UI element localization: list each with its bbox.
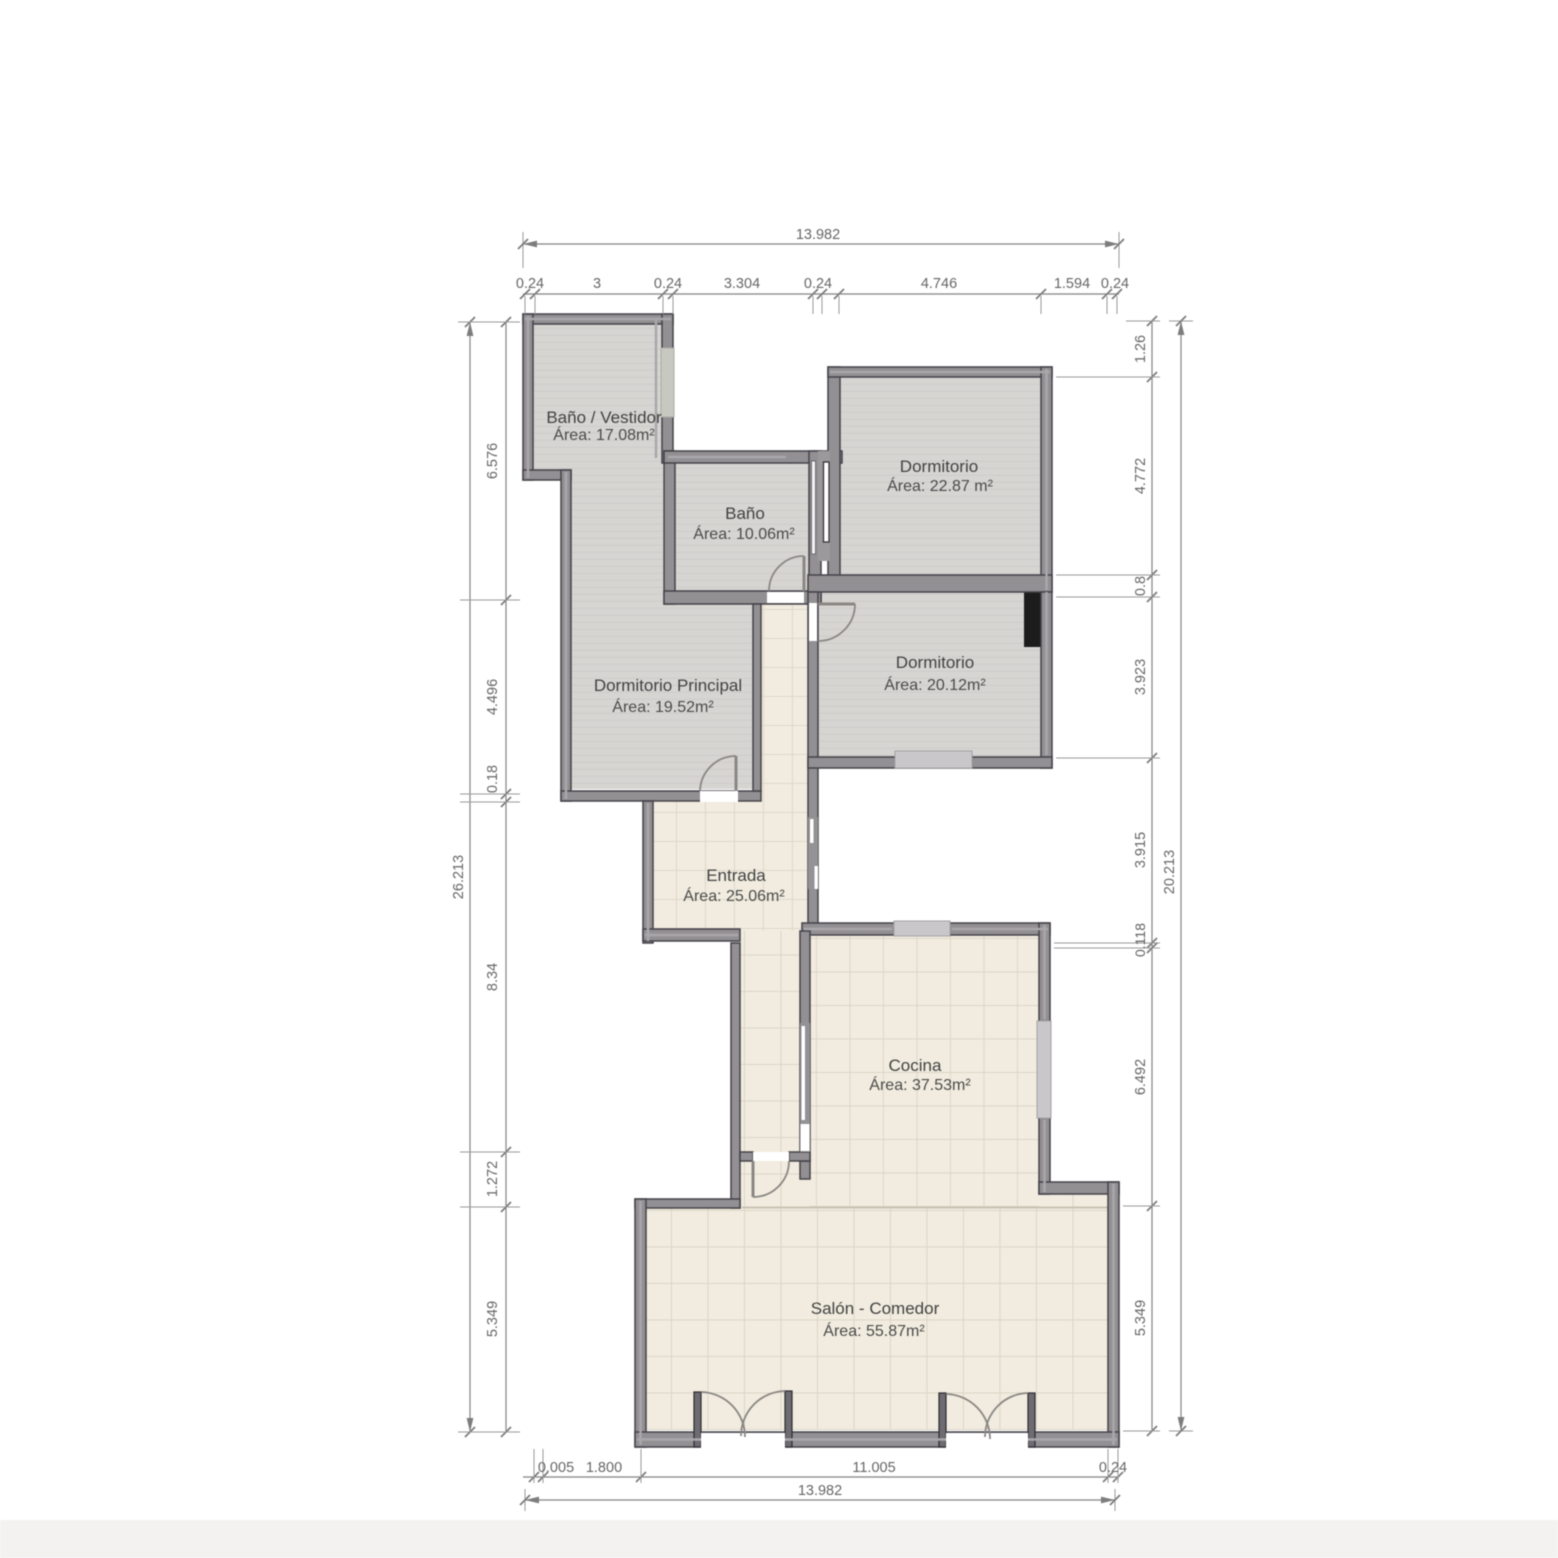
svg-text:8.34: 8.34 bbox=[485, 963, 501, 991]
svg-text:Área: 37.53m²: Área: 37.53m² bbox=[869, 1075, 971, 1094]
svg-text:0.8: 0.8 bbox=[1133, 576, 1149, 596]
svg-text:Entrada: Entrada bbox=[706, 866, 766, 885]
svg-text:Dormitorio Principal: Dormitorio Principal bbox=[594, 676, 742, 695]
svg-text:0.24: 0.24 bbox=[804, 276, 832, 292]
svg-text:Área: 25.06m²: Área: 25.06m² bbox=[683, 886, 785, 905]
svg-text:Dormitorio: Dormitorio bbox=[900, 457, 978, 476]
svg-text:4.772: 4.772 bbox=[1133, 458, 1149, 494]
svg-text:3.304: 3.304 bbox=[724, 276, 760, 292]
svg-text:Área: 17.08m²: Área: 17.08m² bbox=[553, 425, 655, 444]
svg-text:0.24: 0.24 bbox=[1099, 1460, 1127, 1476]
svg-text:13.982: 13.982 bbox=[796, 227, 840, 243]
svg-text:Área: 10.06m²: Área: 10.06m² bbox=[693, 524, 795, 543]
svg-text:Área: 19.52m²: Área: 19.52m² bbox=[612, 697, 714, 716]
svg-text:1.272: 1.272 bbox=[485, 1161, 501, 1197]
svg-text:20.213: 20.213 bbox=[1162, 850, 1178, 894]
svg-text:4.746: 4.746 bbox=[921, 276, 957, 292]
svg-text:5.349: 5.349 bbox=[485, 1301, 501, 1337]
svg-text:0.24: 0.24 bbox=[654, 276, 682, 292]
svg-text:0.005: 0.005 bbox=[538, 1460, 574, 1476]
svg-text:Baño / Vestidor: Baño / Vestidor bbox=[546, 408, 662, 427]
svg-text:3.923: 3.923 bbox=[1133, 659, 1149, 695]
svg-text:26.213: 26.213 bbox=[451, 855, 467, 899]
svg-text:6.492: 6.492 bbox=[1133, 1059, 1149, 1095]
svg-text:3.915: 3.915 bbox=[1133, 832, 1149, 868]
svg-text:1.26: 1.26 bbox=[1133, 335, 1149, 363]
svg-text:0.118: 0.118 bbox=[1132, 923, 1148, 957]
svg-text:Dormitorio: Dormitorio bbox=[896, 653, 974, 672]
svg-text:Área: 55.87m²: Área: 55.87m² bbox=[823, 1321, 925, 1340]
svg-text:4.496: 4.496 bbox=[485, 679, 501, 715]
svg-text:1.594: 1.594 bbox=[1054, 276, 1090, 292]
svg-text:1.800: 1.800 bbox=[586, 1460, 622, 1476]
svg-text:13.982: 13.982 bbox=[798, 1483, 842, 1499]
svg-text:Baño: Baño bbox=[725, 504, 765, 523]
svg-text:Cocina: Cocina bbox=[889, 1056, 942, 1075]
svg-text:0.18: 0.18 bbox=[485, 765, 501, 793]
svg-text:Salón - Comedor: Salón - Comedor bbox=[811, 1299, 940, 1318]
svg-text:3: 3 bbox=[593, 276, 601, 292]
svg-text:0.24: 0.24 bbox=[516, 276, 544, 292]
svg-text:Área: 22.87 m²: Área: 22.87 m² bbox=[887, 476, 994, 495]
svg-text:11.005: 11.005 bbox=[852, 1460, 895, 1476]
svg-text:6.576: 6.576 bbox=[485, 443, 501, 479]
svg-text:Área: 20.12m²: Área: 20.12m² bbox=[884, 675, 986, 694]
svg-text:0.24: 0.24 bbox=[1101, 276, 1129, 292]
svg-text:5.349: 5.349 bbox=[1133, 1300, 1149, 1336]
